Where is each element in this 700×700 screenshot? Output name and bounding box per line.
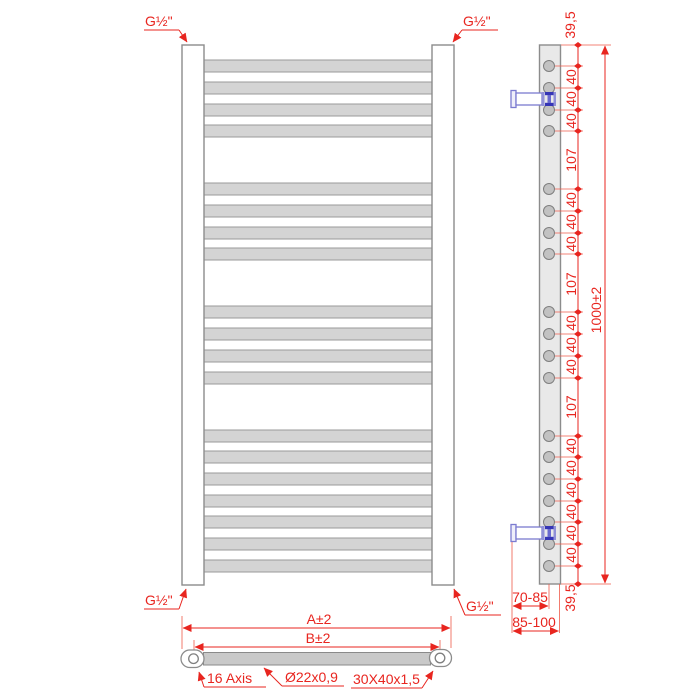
dim-wall-to-back: 85-100	[512, 614, 556, 630]
towel-bar	[204, 473, 432, 485]
bar-end	[544, 61, 555, 72]
bar-end	[544, 126, 555, 137]
towel-bar	[204, 538, 432, 550]
callout-label: Ø22x0,9	[285, 669, 338, 685]
side-dimension-labels: 39,5 40 40 40 107 40 40 40 107 40 40 40 …	[562, 11, 604, 611]
bar-end	[544, 496, 555, 507]
thread-label: G½"	[466, 598, 494, 614]
bottom-view: A±2 B±2 16 Axis Ø22x0,9 30X40x1,5	[181, 611, 452, 688]
dim-bar-pitch: 40	[563, 315, 579, 331]
bar-end	[544, 431, 555, 442]
wall-bracket-top	[511, 91, 556, 108]
thread-callout-top-left: G½"	[144, 13, 187, 42]
towel-bar	[204, 205, 432, 217]
dim-bar-pitch: 40	[563, 547, 579, 563]
dim-bar-pitch: 40	[563, 69, 579, 85]
towel-bar	[204, 516, 432, 528]
bar-end	[544, 329, 555, 340]
dim-bar-pitch: 40	[563, 236, 579, 252]
towel-bar	[204, 104, 432, 116]
right-axis-hole	[435, 653, 445, 663]
towel-bars	[204, 60, 432, 572]
towel-bar	[204, 328, 432, 340]
thread-label: G½"	[145, 13, 173, 29]
dim-bar-pitch: 40	[563, 337, 579, 353]
dim-group-gap: 107	[563, 272, 579, 296]
bar-end	[544, 307, 555, 318]
towel-bar	[204, 495, 432, 507]
thread-callout-bottom-right: G½"	[454, 589, 501, 615]
front-view: G½" G½" G½" G½"	[144, 13, 501, 615]
towel-bar	[204, 306, 432, 318]
bar-end	[544, 249, 555, 260]
dim-bar-pitch: 40	[563, 460, 579, 476]
callout-axis-offset: 16 Axis	[199, 670, 266, 687]
right-upright	[432, 45, 454, 585]
dim-bar-pitch: 40	[563, 438, 579, 454]
dim-group-gap: 107	[563, 148, 579, 172]
bracket-clamp	[545, 92, 554, 95]
thread-label: G½"	[463, 13, 491, 29]
bracket-clamp	[545, 537, 554, 540]
towel-bar	[204, 60, 432, 72]
dim-overall-width: A±2	[307, 611, 332, 627]
bracket-clip	[542, 526, 545, 540]
bar-end	[544, 83, 555, 94]
towel-bar	[204, 248, 432, 260]
callout-upright-profile: 30X40x1,5	[351, 671, 433, 688]
thread-callout-bottom-left: G½"	[144, 589, 186, 609]
leader-arrow	[199, 672, 204, 687]
thread-label: G½"	[145, 592, 173, 608]
bracket-body	[516, 93, 542, 105]
towel-bar	[204, 372, 432, 384]
bar-end	[544, 452, 555, 463]
bar-end	[544, 228, 555, 239]
dim-axis-width: B±2	[306, 630, 331, 646]
dim-bar-pitch: 40	[563, 113, 579, 129]
callout-bar-tube: Ø22x0,9	[264, 668, 344, 686]
callout-label: 16 Axis	[207, 670, 252, 686]
towel-bar	[204, 451, 432, 463]
dim-overall-height: 1000±2	[588, 286, 604, 333]
towel-bar	[204, 350, 432, 362]
side-view: 39,5 40 40 40 107 40 40 40 107 40 40 40 …	[511, 11, 611, 633]
bracket-clamp-web	[548, 95, 552, 103]
towel-bar	[204, 82, 432, 94]
bracket-body	[516, 527, 542, 539]
dim-bar-pitch: 40	[563, 359, 579, 375]
leader-arrow	[422, 671, 433, 688]
left-axis-hole	[189, 654, 199, 664]
dim-bar-pitch: 40	[563, 91, 579, 107]
bar-end	[544, 539, 555, 550]
dim-bar-pitch: 40	[563, 504, 579, 520]
leader-arrow	[264, 668, 282, 686]
bar-end	[544, 184, 555, 195]
radiator-drawing: G½" G½" G½" G½"	[0, 0, 700, 700]
leader-arrow	[454, 589, 465, 615]
bracket-wall-cap	[511, 525, 516, 542]
thread-callout-top-right: G½"	[453, 13, 498, 42]
dim-top-offset: 39,5	[562, 11, 578, 38]
dim-bar-pitch: 40	[563, 525, 579, 541]
towel-bar	[204, 560, 432, 572]
bracket-clip	[542, 92, 545, 106]
towel-bar	[204, 183, 432, 195]
callout-label: 30X40x1,5	[353, 671, 420, 687]
bar-end	[544, 517, 555, 528]
wall-bracket-bottom	[511, 525, 556, 542]
bracket-clamp	[545, 526, 554, 529]
leader-arrow	[179, 589, 186, 609]
bracket-clamp	[545, 103, 554, 106]
bar-end	[544, 561, 555, 572]
technical-drawing-canvas: G½" G½" G½" G½"	[0, 0, 700, 700]
leader-arrow	[453, 30, 462, 42]
left-upright	[182, 45, 204, 585]
dim-group-gap: 107	[563, 395, 579, 419]
crossbar-tube-plan	[204, 653, 431, 666]
towel-bar	[204, 125, 432, 137]
dim-bottom-offset: 39,5	[562, 584, 578, 611]
dim-wall-to-axis: 70-85	[512, 589, 548, 605]
bracket-clamp-web	[548, 529, 552, 537]
bar-end	[544, 105, 555, 116]
bracket-clip	[554, 92, 557, 106]
dim-bar-pitch: 40	[563, 192, 579, 208]
leader-arrow	[179, 30, 187, 42]
bar-end	[544, 351, 555, 362]
bracket-wall-cap	[511, 91, 516, 108]
towel-bar	[204, 227, 432, 239]
bar-end	[544, 373, 555, 384]
dim-bar-pitch: 40	[563, 214, 579, 230]
towel-bar	[204, 430, 432, 442]
bracket-clip	[554, 526, 557, 540]
bar-end	[544, 206, 555, 217]
dim-bar-pitch: 40	[563, 482, 579, 498]
bar-end	[544, 474, 555, 485]
